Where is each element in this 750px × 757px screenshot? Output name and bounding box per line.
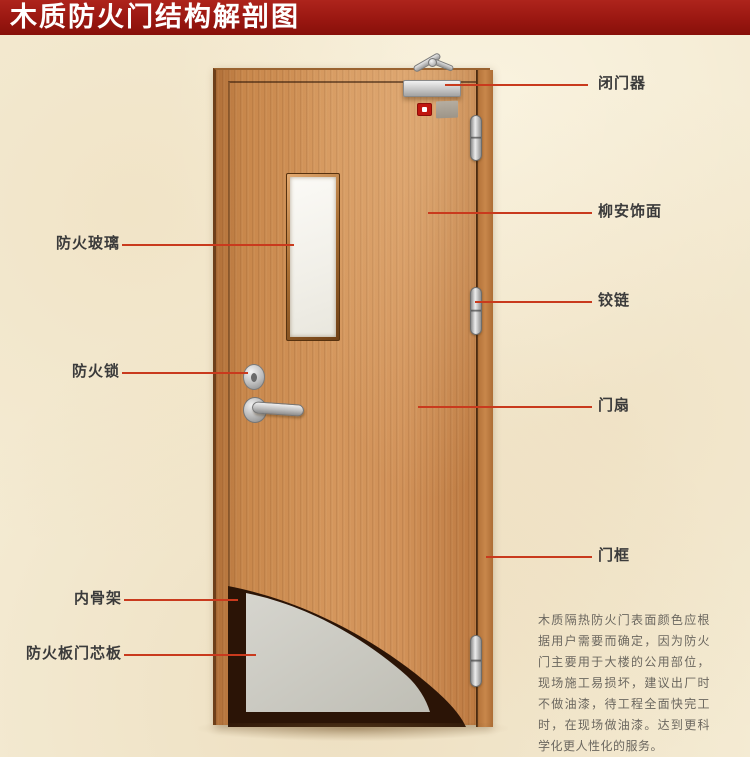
callout-label-door-frame: 门框: [598, 548, 630, 564]
leader-line-fire-lock: [122, 372, 248, 374]
leader-line-inner-skeleton: [124, 599, 238, 601]
door-closer-body: [403, 80, 461, 97]
leader-line-hinge: [475, 301, 592, 303]
leader-line-fire-glass: [122, 244, 294, 246]
leader-line-door-closer: [445, 84, 588, 86]
door-frame-strip: [476, 70, 493, 727]
callout-label-hinge: 铰链: [598, 293, 630, 309]
fire-sign-dot: [422, 107, 427, 112]
door-illustration: [213, 68, 490, 725]
hinge-middle: [470, 287, 482, 335]
hinge-top: [470, 115, 482, 161]
glass-window-frame: [286, 173, 340, 341]
callout-label-door-leaf: 门扇: [598, 398, 630, 414]
page-background: 木质防火门结构解剖图: [0, 0, 750, 757]
callout-label-fire-lock: 防火锁: [8, 364, 120, 380]
hinge-bottom: [470, 635, 482, 687]
label-plate: [436, 101, 458, 119]
leader-line-door-leaf: [418, 406, 592, 408]
fire-lock-cylinder: [243, 364, 265, 390]
door-shadow: [198, 723, 508, 741]
cutaway-dark-edge: [228, 586, 466, 727]
description-paragraph: 木质隔热防火门表面颜色应根据用户需要而确定，因为防火门主要用于大楼的公用部位，现…: [538, 610, 710, 757]
door-closer-pivot: [428, 58, 437, 67]
core-panel: [246, 593, 430, 712]
page-title: 木质防火门结构解剖图: [0, 0, 300, 35]
leader-line-door-frame: [486, 556, 592, 558]
title-banner: 木质防火门结构解剖图: [0, 0, 750, 35]
leader-line-core-panel: [124, 654, 256, 656]
callout-label-inner-skeleton: 内骨架: [10, 591, 122, 607]
keyhole: [251, 373, 257, 382]
fire-sign: [417, 103, 432, 116]
fire-rated-glass: [290, 177, 336, 337]
callout-label-core-panel: 防火板门芯板: [10, 646, 122, 662]
leader-line-veneer: [428, 212, 592, 214]
callout-label-veneer: 柳安饰面: [598, 204, 662, 220]
callout-label-door-closer: 闭门器: [598, 76, 646, 92]
callout-label-fire-glass: 防火玻璃: [8, 236, 120, 252]
